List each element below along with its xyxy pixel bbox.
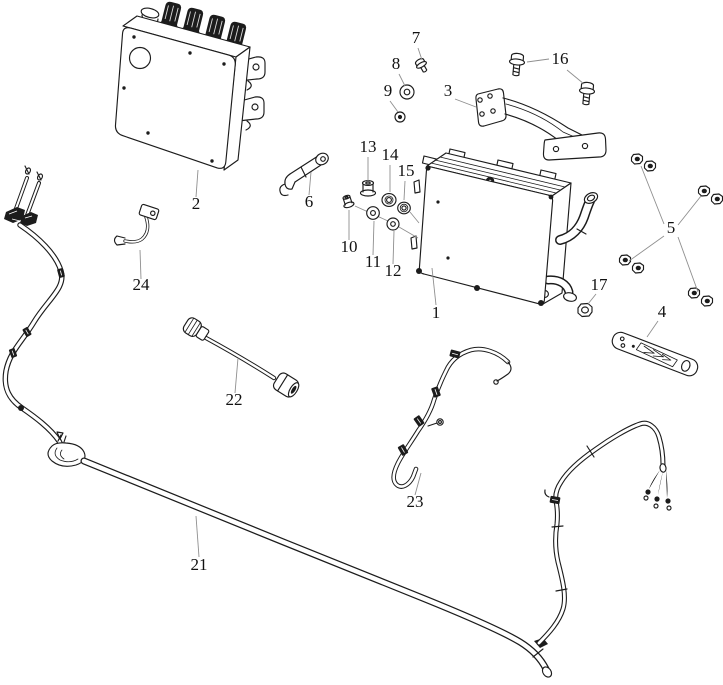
leader-line-4 [647, 321, 658, 337]
part-label-8: 8 [392, 54, 401, 73]
part-label-3: 3 [444, 81, 453, 100]
diagram-svg: 123456789101112131415161721222324 [0, 0, 723, 685]
part-label-14: 14 [382, 145, 400, 164]
part-label-5: 5 [667, 218, 676, 237]
part-15-washer [398, 202, 411, 214]
part-label-24: 24 [133, 275, 151, 294]
part-24-bond-strap [115, 204, 160, 245]
part-label-12: 12 [385, 261, 402, 280]
part-label-2: 2 [192, 194, 201, 213]
part-label-15: 15 [398, 161, 415, 180]
leader-line-11 [373, 221, 374, 255]
part-label-17: 17 [591, 275, 609, 294]
leader-line-12 [393, 231, 394, 264]
leader-line-16 [527, 59, 549, 62]
leader-line-5 [629, 236, 664, 261]
leader-line-17 [588, 294, 596, 304]
part-3-mounting-bracket [476, 89, 606, 160]
part-23-harness [394, 349, 511, 486]
leader-line-5 [678, 237, 698, 292]
part-14-washer [382, 194, 396, 207]
part-21-main-cable [4, 166, 671, 679]
part-label-9: 9 [384, 81, 393, 100]
part-label-13: 13 [360, 137, 377, 156]
part-label-10: 10 [341, 237, 358, 256]
leader-line-5 [641, 166, 664, 224]
leader-line-9 [390, 101, 398, 112]
part-16-bolt-a [508, 53, 525, 77]
connector-b-icon [272, 371, 302, 400]
leader-line-16 [567, 70, 584, 84]
part-2-control-box [115, 1, 265, 170]
ring-terminal-end-icon [4, 166, 44, 226]
part-label-1: 1 [432, 303, 441, 322]
parts-diagram-page: 123456789101112131415161721222324 [0, 0, 723, 685]
part-label-4: 4 [658, 302, 667, 321]
leader-line-2 [196, 170, 198, 197]
part-9-washer [395, 112, 405, 122]
leader-line-8 [399, 74, 405, 86]
part-17-nut [578, 304, 592, 317]
part-22-jumper-cable [181, 316, 301, 400]
part-11-washer [367, 207, 380, 220]
leader-line-15 [404, 181, 405, 200]
part-1-main-unit [411, 149, 599, 306]
part-label-23: 23 [407, 492, 424, 511]
branch-clip-icon [549, 496, 560, 505]
part-label-16: 16 [552, 49, 569, 68]
leader-line-22 [235, 358, 238, 393]
wire-terminals-icon [644, 470, 671, 510]
part-label-11: 11 [365, 252, 381, 271]
leader-line-5 [678, 196, 701, 225]
leader-line-21 [196, 516, 199, 557]
part-13-flange-nut [361, 181, 376, 196]
part-label-22: 22 [226, 390, 243, 409]
part-6-lever-arm [280, 151, 331, 196]
part-16-bolt-b [578, 82, 595, 106]
part-label-7: 7 [412, 28, 421, 47]
part-label-21: 21 [191, 555, 208, 574]
leader-line-7 [418, 48, 422, 60]
part-8-washer [400, 85, 414, 99]
part-10-stud [341, 194, 355, 209]
part-12-washer [387, 218, 399, 230]
leader-line-3 [455, 99, 476, 107]
part-label-6: 6 [305, 192, 314, 211]
part-4-plate [610, 330, 700, 378]
fastener-cluster [341, 181, 419, 238]
